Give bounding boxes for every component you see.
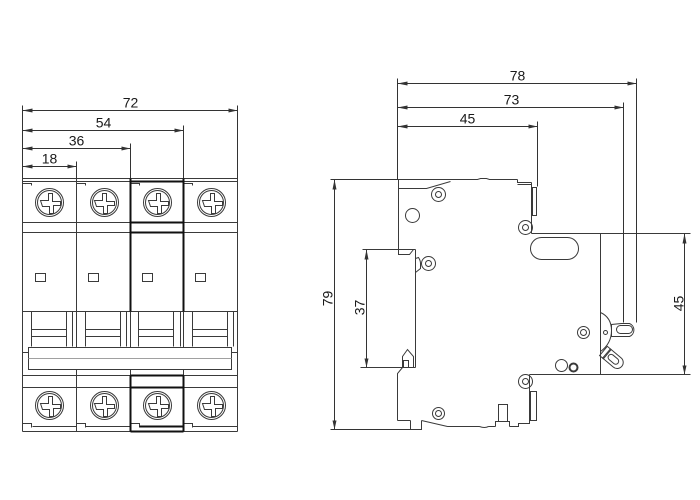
- svg-text:73: 73: [504, 92, 520, 108]
- svg-text:36: 36: [69, 133, 85, 149]
- svg-text:45: 45: [671, 296, 687, 312]
- svg-text:78: 78: [510, 68, 526, 84]
- svg-text:18: 18: [42, 151, 58, 167]
- svg-text:45: 45: [460, 111, 476, 127]
- svg-text:72: 72: [123, 95, 139, 111]
- svg-text:79: 79: [320, 291, 336, 307]
- svg-text:37: 37: [352, 300, 368, 316]
- svg-text:54: 54: [96, 115, 112, 131]
